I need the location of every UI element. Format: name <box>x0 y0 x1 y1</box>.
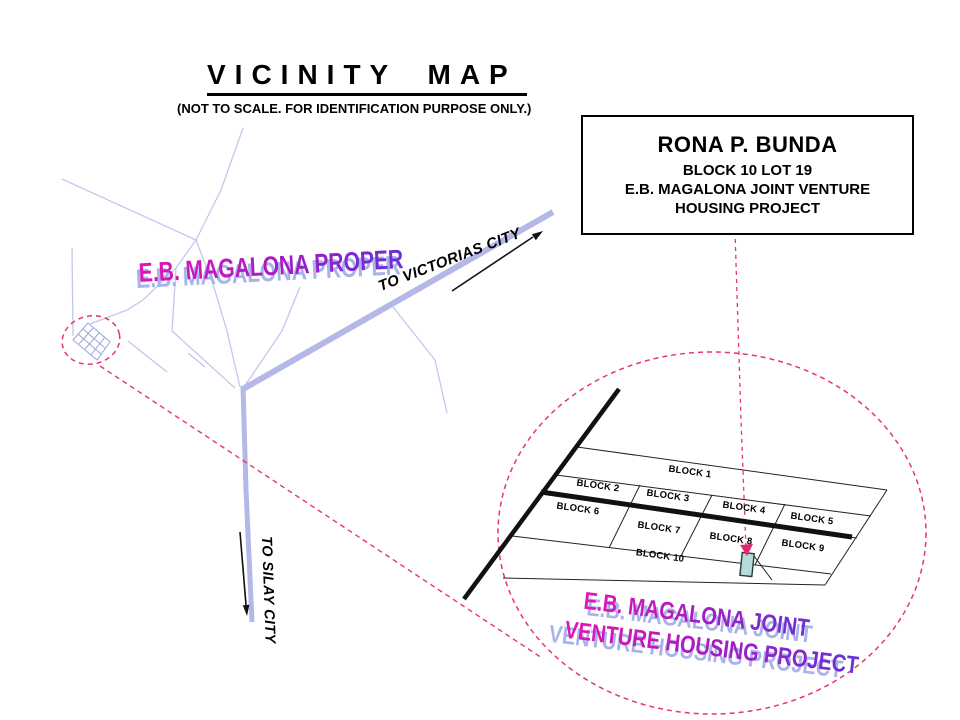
owner-project-line2: HOUSING PROJECT <box>675 199 820 218</box>
owner-project-line1: E.B. MAGALONA JOINT VENTURE <box>625 180 870 199</box>
highlighted-lot <box>740 552 754 576</box>
victorias-arrow-head <box>532 231 543 240</box>
block-divider-1 <box>609 485 640 548</box>
owner-callout-box: RONA P. BUNDA BLOCK 10 LOT 19 E.B. MAGAL… <box>581 115 914 235</box>
page-title: VICINITY MAP <box>207 61 527 96</box>
mini-subdivision-grid <box>73 323 110 360</box>
grid-right-edge <box>825 490 887 585</box>
zoom-connector-line <box>100 366 542 658</box>
owner-block-lot: BLOCK 10 LOT 19 <box>683 161 812 180</box>
small-highlight-circle <box>58 310 125 369</box>
lot-boundary <box>754 556 772 580</box>
owner-name: RONA P. BUNDA <box>657 132 837 158</box>
page-subtitle: (NOT TO SCALE. FOR IDENTIFICATION PURPOS… <box>177 101 531 116</box>
silay-arrow-line <box>240 532 246 605</box>
silay-arrow-head <box>243 605 250 616</box>
vicinity-map-page: VICINITY MAP (NOT TO SCALE. FOR IDENTIFI… <box>0 0 960 720</box>
